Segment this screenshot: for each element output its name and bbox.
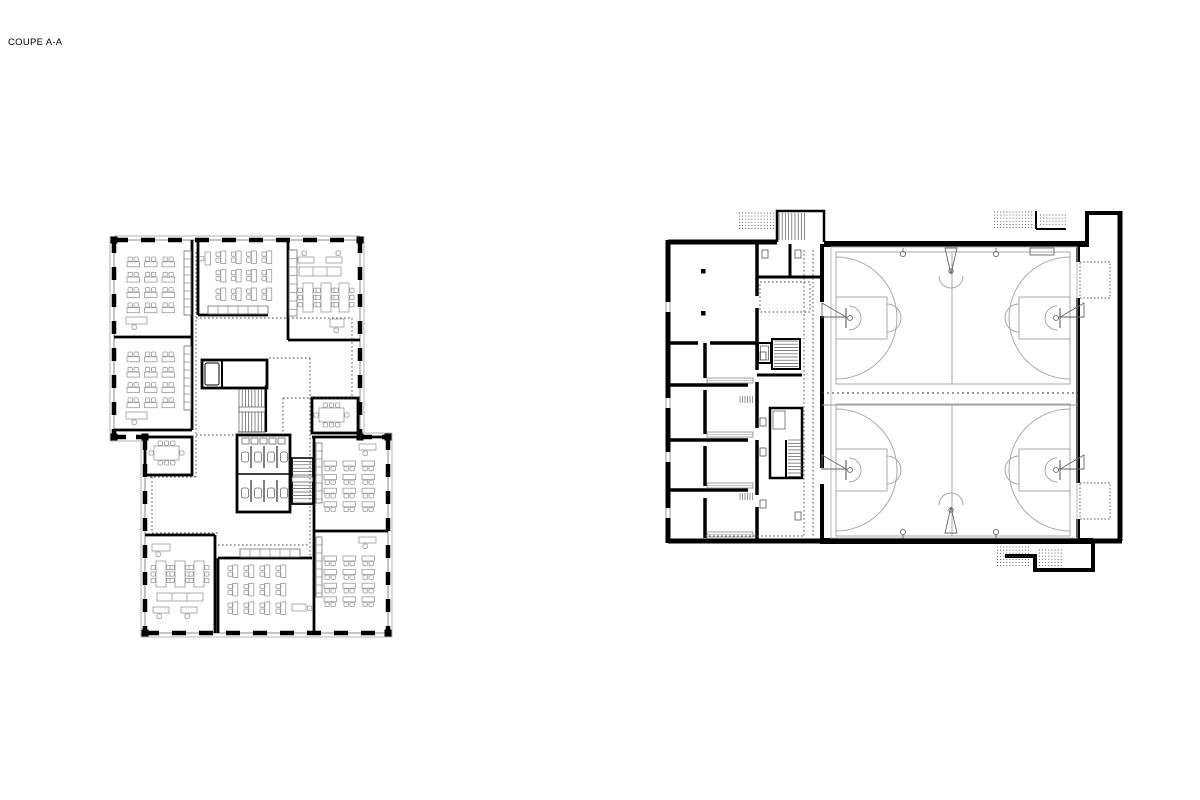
hoop [1054,316,1059,321]
meeting-table [205,578,209,582]
meeting-table [298,295,302,299]
meeting-table [149,451,153,455]
classroom-desks [260,566,264,570]
classroom-desks [216,252,220,256]
school-floor-plan [110,236,392,637]
meeting-table [336,403,340,407]
wc-fixture [760,448,766,456]
teacher-desk [363,544,367,548]
classroom-desks [281,602,286,615]
classroom-desks [249,565,254,578]
classroom-desks [231,258,235,262]
classroom-desks [221,270,226,283]
classroom-desks [228,609,232,613]
sink [260,438,267,444]
classroom-desks [276,572,280,576]
classroom-desks [267,251,272,264]
meeting-table [180,451,184,455]
classroom-desks [152,303,156,307]
teacher-desk [359,444,376,450]
hoop-bracket [1060,455,1084,469]
classroom-desks [169,288,173,292]
meeting-table [298,288,302,292]
classroom-desks [236,251,241,264]
classroom-desks [162,372,175,377]
teacher-desk [292,604,306,611]
classroom-desks [350,507,354,511]
classroom-desks [145,372,158,377]
meeting-table [170,572,174,576]
classroom-desks [146,367,150,371]
hoop-bracket [1060,303,1084,317]
equipment-niche [1080,262,1110,298]
classroom-desks [344,589,348,593]
teacher-desk [132,325,136,329]
classroom-desks [146,398,150,402]
meeting-table [171,461,175,465]
teacher-desk [200,257,204,261]
classroom-desks [145,403,158,408]
classroom-desks [331,562,335,566]
classroom-desks [169,383,173,387]
classroom-desks [169,303,173,307]
classroom-desks [362,475,375,480]
classroom-desks [363,562,367,566]
classroom-desks [369,494,373,498]
classroom-desks [362,570,375,575]
classroom-desks [362,502,375,507]
meeting-table [189,565,193,569]
classroom-desks [169,398,173,402]
sink [242,438,249,444]
teacher-desk [126,317,147,324]
classroom-desks [262,252,266,256]
classroom-desks [369,575,373,579]
classroom-desks [146,352,150,356]
classroom-desks [260,572,264,576]
meeting-table [329,403,333,407]
sink [269,438,276,444]
entry-walls [777,211,824,242]
column [701,269,706,274]
wall [1087,213,1120,247]
classroom-desks [344,494,348,498]
toilet [281,452,288,462]
cabinet-strip [316,537,322,597]
classroom-desks [169,367,173,371]
three-point-arc [836,257,897,379]
classroom-desks [350,562,354,566]
meeting-table [151,578,155,582]
classroom-desks [343,597,356,602]
classroom-desks [128,383,132,387]
classroom-desks [228,566,232,570]
classroom-desks [128,288,132,292]
meeting-table [151,572,155,576]
classroom-desks [262,277,266,281]
hoop-bracket [945,507,957,533]
office-desk [298,257,314,263]
classroom-desks [134,272,138,276]
classroom-desks [343,488,356,493]
meeting-table [194,561,204,587]
classroom-desks [236,288,241,301]
classroom-desks [163,288,167,292]
wc-fixture [762,250,768,258]
hoop [848,316,853,321]
classroom-desks [325,467,329,471]
classroom-desks [145,277,158,282]
classroom-desks [162,308,175,313]
teacher-desk [205,252,211,265]
classroom-desks [325,507,329,511]
classroom-desks [362,597,375,602]
meeting-table [316,288,320,292]
classroom-desks [244,603,248,607]
classroom-desks [162,403,175,408]
three-point-arc [1009,409,1070,531]
classroom-desks [343,475,356,480]
classroom-desks [163,303,167,307]
classroom-desks [228,572,232,576]
cabinet-strip [289,250,297,316]
classroom-desks [324,475,337,480]
classroom-desks [331,575,335,579]
meeting-table [298,303,302,307]
classroom-desks [324,597,337,602]
classroom-desks [228,591,232,595]
classroom-desks [134,257,138,261]
classroom-desks [350,494,354,498]
classroom-desks [362,583,375,588]
office-desk [157,614,161,618]
classroom-desks [145,292,158,297]
classroom-desks [331,467,335,471]
classroom-desks [127,387,140,392]
classroom-desks [369,480,373,484]
corridor-dots [760,282,810,312]
classroom-desks [244,585,248,589]
classroom-desks [163,398,167,402]
classroom-desks [249,602,254,615]
mini-hoop [900,529,905,534]
classroom-desks [146,257,150,261]
floor-plans-canvas [0,0,1200,800]
classroom-desks [281,584,286,597]
classroom-desks [216,258,220,262]
classroom-desks [134,383,138,387]
no-charge-arc [1045,458,1057,482]
classroom-desks [128,303,132,307]
classroom-desks [369,467,373,471]
classroom-desks [228,603,232,607]
classroom-desks [260,591,264,595]
classroom-desks [276,585,280,589]
corner-pier [142,630,149,637]
three-point-arc [836,409,897,531]
meeting-table [329,423,333,427]
meeting-table [164,461,168,465]
classroom-desks [221,288,226,301]
three-point-arc [1009,257,1070,379]
free-throw-arc [1005,304,1019,332]
classroom-desks [152,288,156,292]
classroom-desks [244,572,248,576]
meeting-table [314,413,318,417]
meeting-table [158,461,162,465]
classroom-desks [146,288,150,292]
classroom-desks [362,488,375,493]
classroom-desks [363,602,367,606]
no-charge-arc [849,458,861,482]
teacher-desk [308,606,312,610]
classroom-desks [281,565,286,578]
meeting-table [170,578,174,582]
equipment-niche [1080,483,1110,519]
side-table [334,328,338,332]
classroom-desks [231,271,235,275]
classroom-desks [369,589,373,593]
meeting-table [189,578,193,582]
corner-pier [111,434,118,441]
classroom-desks [362,461,375,466]
classroom-desks [324,570,337,575]
side-table [330,319,344,327]
office-desk [336,251,340,255]
classroom-desks [145,357,158,362]
no-charge-arc [939,276,963,288]
classroom-desks [344,507,348,511]
classroom-desks [251,251,256,264]
classroom-desks [331,494,335,498]
office-desk [152,544,170,551]
classroom-desks [231,252,235,256]
classroom-desks [343,556,356,561]
classroom-desks [169,272,173,276]
office-desk [181,607,197,613]
classroom-desks [350,589,354,593]
column [701,311,706,316]
mini-hoop [993,529,998,534]
classroom-desks [162,277,175,282]
toilet [268,488,275,498]
no-charge-arc [1045,306,1057,330]
classroom-desks [325,562,329,566]
classroom-desks [152,367,156,371]
classroom-desks [163,257,167,261]
meeting-table [164,441,168,445]
meeting-table [154,446,179,460]
corner-pier [385,630,392,637]
classroom-desks [369,602,373,606]
corner-pier [111,237,118,244]
classroom-desks [331,589,335,593]
classroom-desks [363,575,367,579]
classroom-desks [162,292,175,297]
classroom-desks [265,565,270,578]
classroom-desks [343,461,356,466]
classroom-desks [221,251,226,264]
office-desk [153,607,169,613]
classroom-desks [216,277,220,281]
hoop [1054,468,1059,473]
classroom-desks [325,602,329,606]
classroom-desks [247,295,251,299]
sink [251,438,258,444]
classroom-desks [134,352,138,356]
elevator-block [202,360,267,388]
classroom-desks [134,303,138,307]
hoop [848,468,853,473]
classroom-desks [134,288,138,292]
sports-hall-plan [666,211,1122,570]
classroom-desks [247,277,251,281]
classroom-desks [247,271,251,275]
classroom-desks [145,387,158,392]
classroom-desks [369,507,373,511]
classroom-desks [127,292,140,297]
classroom-desks [344,575,348,579]
classroom-desks [128,398,132,402]
classroom-desks [362,556,375,561]
classroom-desks [152,383,156,387]
teacher-desk [363,451,367,455]
classroom-desks [350,467,354,471]
classroom-desks [128,272,132,276]
classroom-desks [146,272,150,276]
toilet [255,452,262,462]
long-table [157,593,203,601]
classroom-desks [343,502,356,507]
classroom-desks [169,352,173,356]
classroom-desks [145,262,158,267]
toilet [281,488,288,498]
office-desk [326,257,342,263]
classroom-desks [169,257,173,261]
cabinet-strip [316,443,322,503]
classroom-desks [127,372,140,377]
classroom-desks [152,398,156,402]
wc-fixture [760,352,766,360]
classroom-desks [344,480,348,484]
classroom-desks [262,258,266,262]
meeting-table [158,441,162,445]
classroom-desks [251,270,256,283]
wc-fixture [795,250,801,258]
free-throw-arc [1005,456,1019,484]
office-desk [185,614,189,618]
classroom-desks [260,603,264,607]
meeting-table [339,283,349,312]
teacher-desk [359,537,376,543]
classroom-desks [128,367,132,371]
classroom-desks [369,562,373,566]
classroom-desks [247,289,251,293]
elevator-car [761,346,769,360]
classroom-desks [244,591,248,595]
classroom-desks [324,556,337,561]
teacher-desk [132,420,136,424]
classroom-desks [127,277,140,282]
classroom-desks [265,584,270,597]
classroom-desks [262,295,266,299]
toilet [242,488,249,498]
classroom-desks [145,308,158,313]
classroom-desks [331,480,335,484]
meeting-table [175,561,185,587]
classroom-desks [276,609,280,613]
wc-fixture [760,418,766,426]
meeting-table [323,423,327,427]
classroom-desks [331,507,335,511]
classroom-desks [350,480,354,484]
meeting-table [350,288,354,292]
classroom-desks [325,494,329,498]
meeting-table [334,303,338,307]
classroom-desks [363,589,367,593]
classroom-desks [276,591,280,595]
meeting-table [170,565,174,569]
classroom-desks [276,603,280,607]
classroom-desks [236,270,241,283]
classroom-desks [262,271,266,275]
long-table [299,267,341,276]
classroom-desks [251,288,256,301]
free-throw-arc [887,304,901,332]
classroom-desks [127,262,140,267]
wc-fixture [795,512,801,520]
classroom-desks [350,602,354,606]
meeting-table [334,295,338,299]
classroom-desks [134,398,138,402]
classroom-desks [127,308,140,313]
classroom-desks [233,565,238,578]
office-desk [302,251,306,255]
meeting-table [156,561,166,587]
stair-lobby [773,411,785,429]
meeting-table [205,565,209,569]
meeting-table [189,572,193,576]
meeting-table [334,288,338,292]
classroom-desks [343,570,356,575]
classroom-desks [233,584,238,597]
classroom-desks [244,609,248,613]
classroom-desks [324,583,337,588]
classroom-desks [127,357,140,362]
meeting-table [205,572,209,576]
classroom-desks [152,352,156,356]
teacher-desk [126,412,147,419]
classroom-desks [127,403,140,408]
classroom-desks [152,272,156,276]
classroom-desks [128,352,132,356]
classroom-desks [146,383,150,387]
classroom-desks [324,461,337,466]
classroom-desks [260,585,264,589]
classroom-desks [325,480,329,484]
classroom-desks [216,271,220,275]
classroom-desks [276,566,280,570]
classroom-desks [244,566,248,570]
classroom-desks [267,270,272,283]
classroom-desks [325,575,329,579]
free-throw-arc [887,456,901,484]
classroom-desks [247,252,251,256]
classroom-desks [363,480,367,484]
meeting-table [345,413,349,417]
classroom-desks [163,272,167,276]
meeting-table [319,408,344,422]
